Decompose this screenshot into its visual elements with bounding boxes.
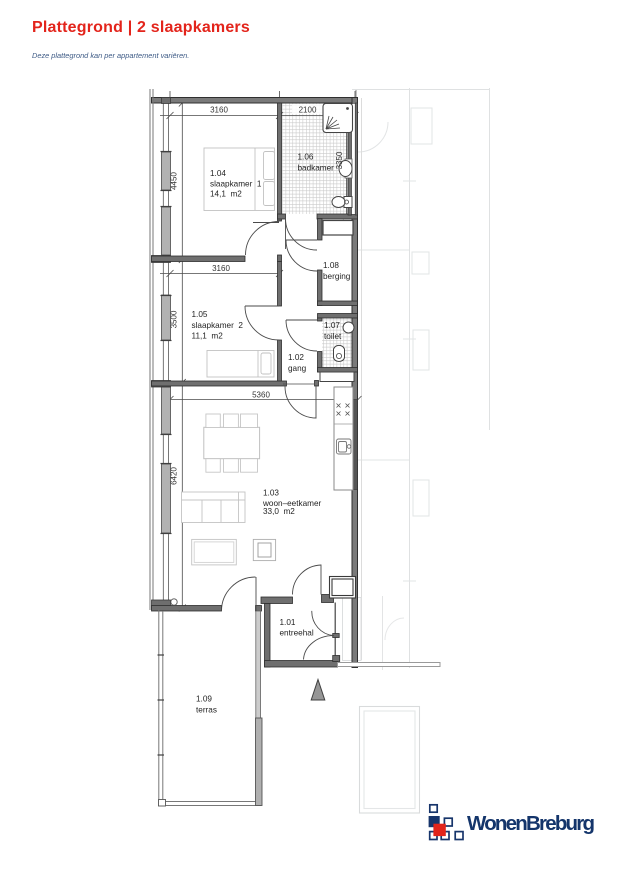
svg-text:WonenBreburg: WonenBreburg — [467, 812, 595, 835]
